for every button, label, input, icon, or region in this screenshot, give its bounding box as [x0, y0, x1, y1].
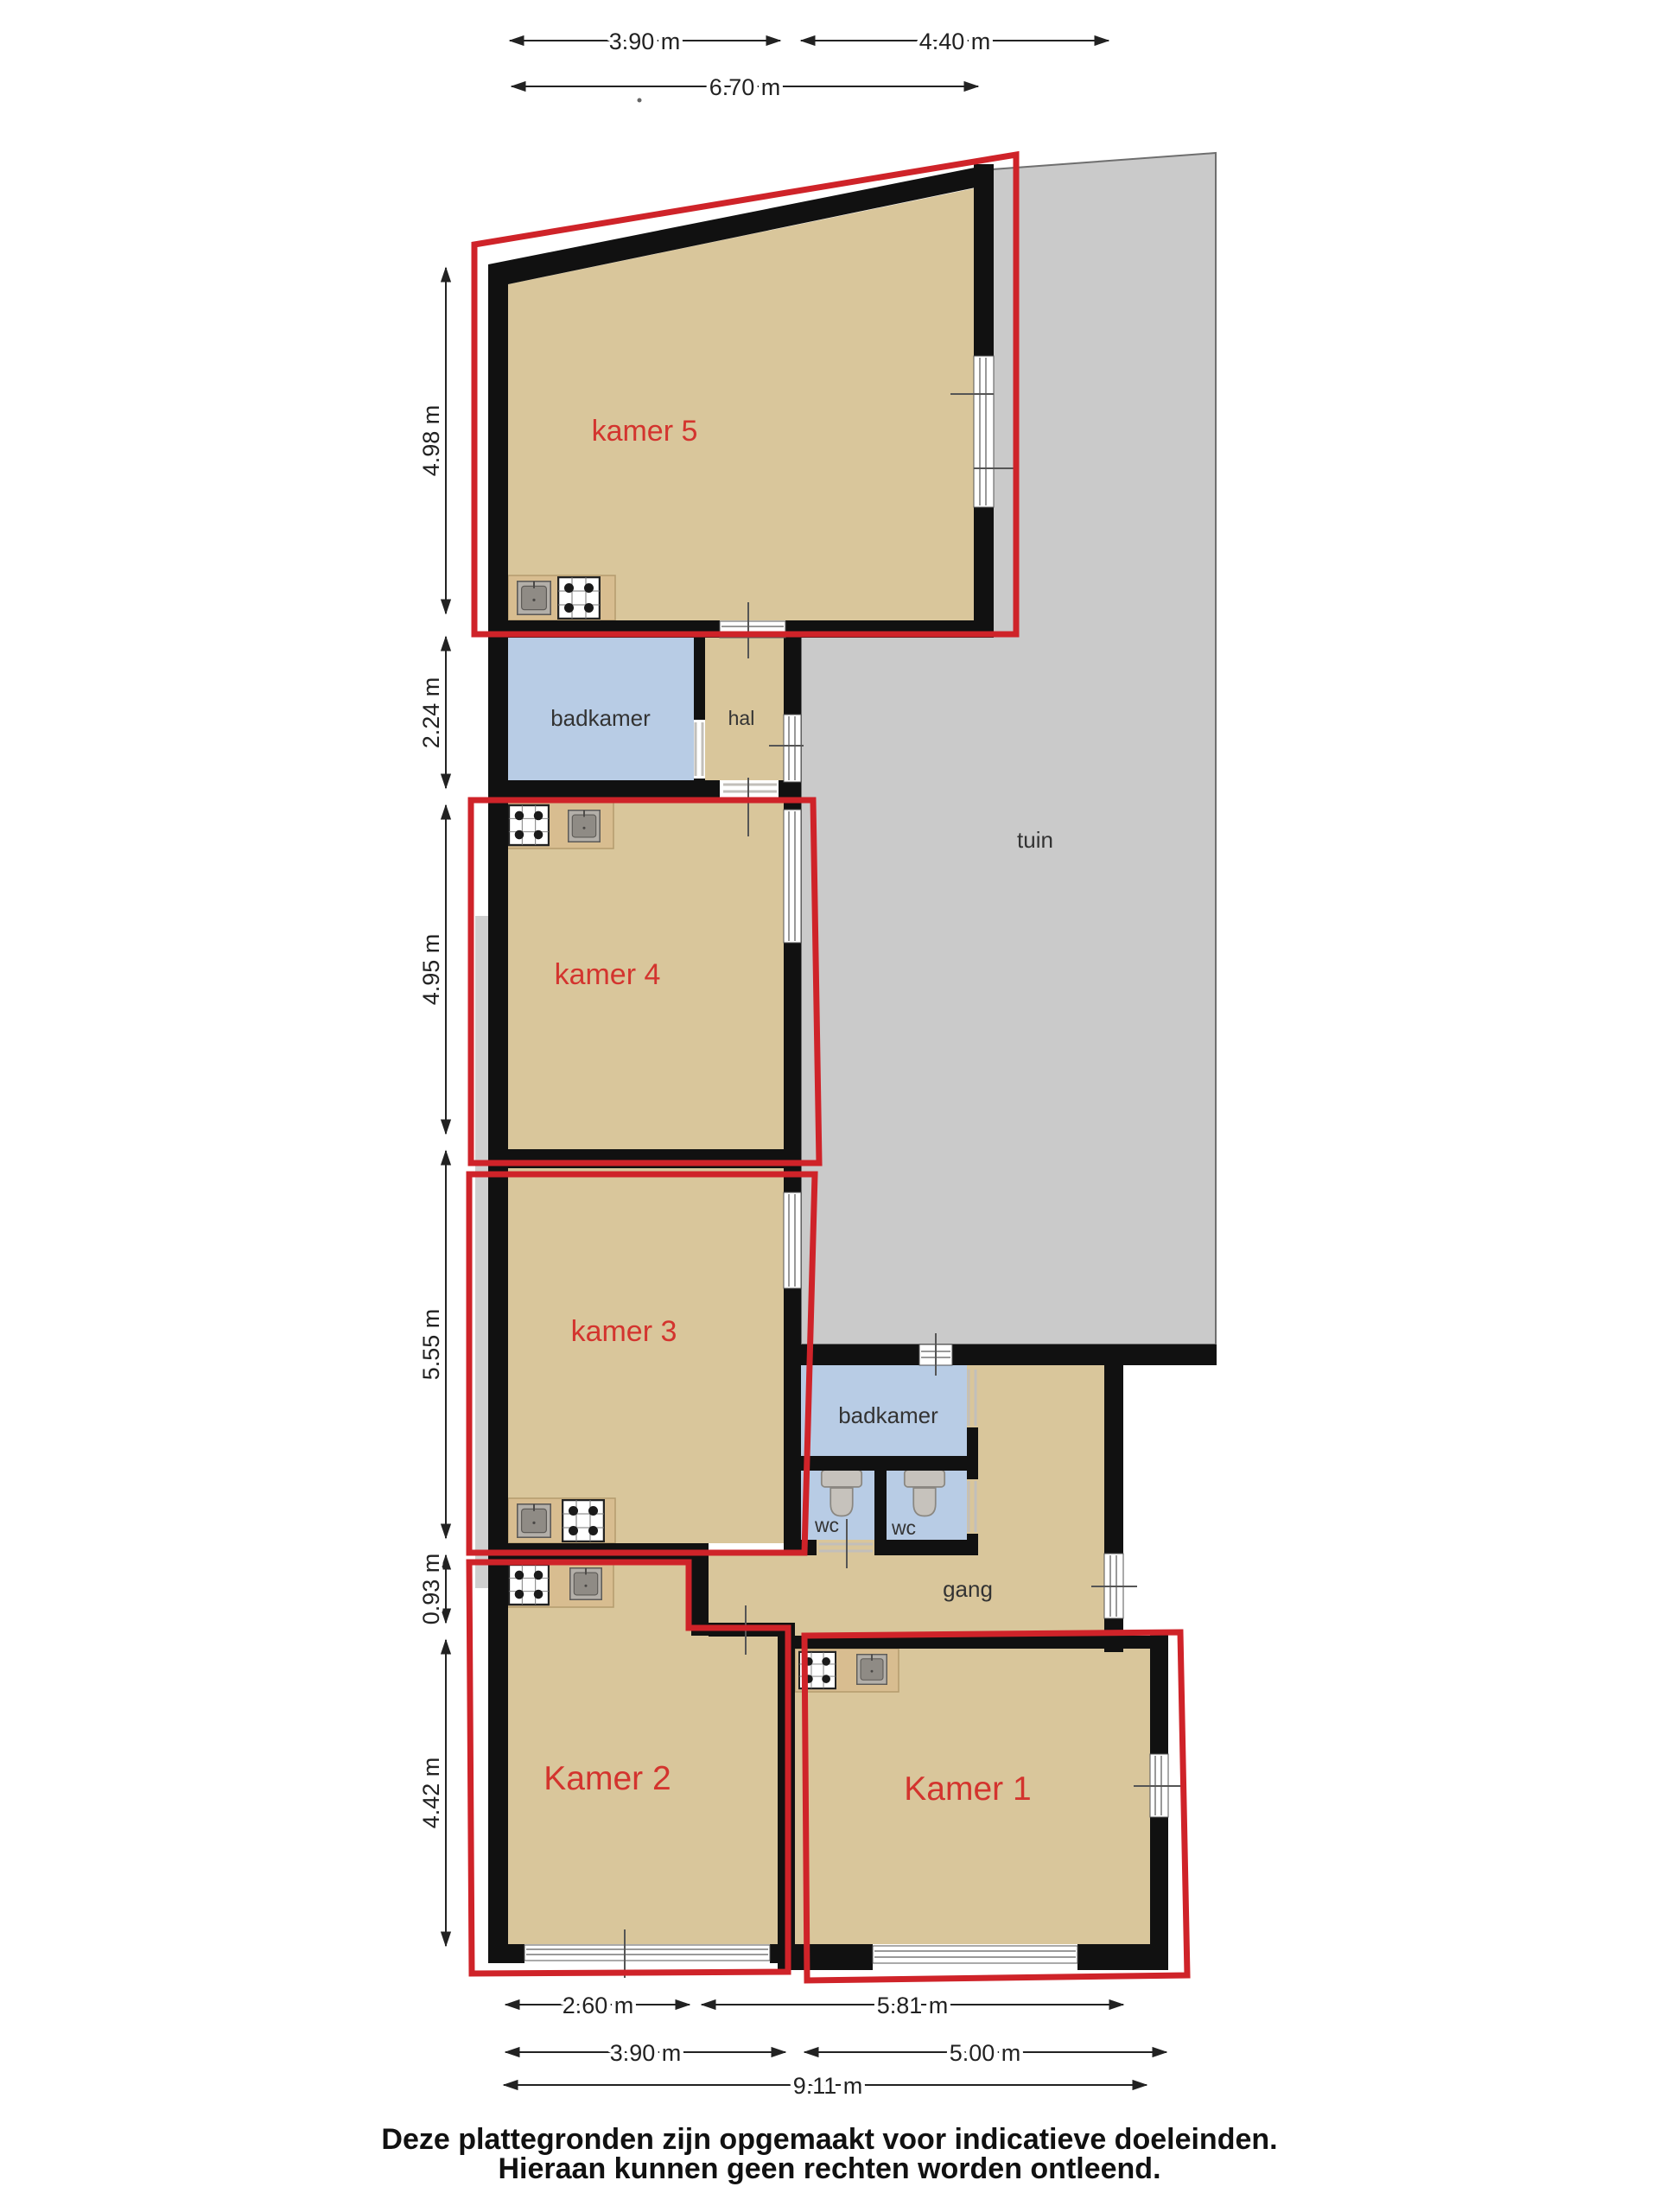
wall-segment	[488, 1944, 524, 1963]
room-label-badkamer: badkamer	[838, 1402, 938, 1428]
wall-segment	[784, 637, 801, 715]
side-path	[475, 916, 488, 1588]
room-label-kamer1: Kamer 1	[904, 1770, 1031, 1808]
room-label-kamer4: kamer 4	[555, 958, 661, 991]
stove-icon	[563, 1500, 604, 1541]
wall-segment	[691, 1543, 709, 1636]
stove-icon	[558, 577, 600, 619]
dimension-label: 5.55 m	[418, 1309, 444, 1381]
room-label-wc-rechts: wc	[891, 1516, 916, 1539]
disclaimer: Deze plattegronden zijn opgemaakt voor i…	[381, 2123, 1277, 2185]
sink-icon	[569, 810, 600, 842]
sink-icon	[518, 1504, 550, 1537]
window-kamer5-right	[974, 356, 994, 507]
wall-segment	[874, 1540, 978, 1555]
room-label-kamer3: kamer 3	[571, 1315, 677, 1348]
room-label-kamer2: Kamer 2	[543, 1760, 671, 1797]
dimension-label: 2.24 m	[418, 677, 444, 749]
wall-segment	[974, 164, 994, 356]
room-label-gang: gang	[943, 1576, 993, 1602]
dimension-dot	[638, 99, 642, 103]
wall-segment	[874, 1471, 887, 1540]
sink-icon	[857, 1655, 887, 1685]
wall-segment	[974, 507, 994, 637]
dimension-label: 4.40 m	[919, 29, 991, 54]
floor-plan-canvas: 3.90 m 4.40 m 6.70 m 4.98 m 2.24 m 4.95 …	[0, 0, 1659, 2212]
dimension-label: 3.90 m	[609, 29, 681, 54]
window-kamer3-right	[784, 1192, 801, 1288]
window-hal-right	[784, 715, 801, 782]
window-kamer4-right	[784, 810, 801, 943]
wall-segment	[770, 1944, 795, 1963]
dimension-label: 5.81 m	[877, 1993, 949, 2018]
window-kamer2-bottom	[524, 1945, 770, 1961]
wall-segment	[779, 780, 801, 799]
room-label-kamer5: kamer 5	[592, 415, 698, 448]
room-label-badkamer-boven: badkamer	[550, 705, 651, 731]
wall-segment	[784, 1456, 978, 1471]
wall-segment	[488, 264, 508, 1963]
wall-segment	[784, 1288, 801, 1553]
wall-segment	[952, 1344, 1217, 1365]
room-label-hal: hal	[728, 707, 755, 729]
dimension-label: 5.00 m	[950, 2040, 1021, 2066]
dimension-label: 6.70 m	[709, 74, 781, 100]
dimension-label: 9.11 m	[793, 2073, 863, 2099]
floor-plan-page: 3.90 m 4.40 m 6.70 m 4.98 m 2.24 m 4.95 …	[0, 0, 1659, 2212]
dimension-label: 4.98 m	[418, 405, 444, 477]
window-kamer1-bottom	[873, 1946, 1077, 1963]
wall-segment	[1150, 1633, 1168, 1754]
wall-segment	[694, 637, 705, 720]
wall-segment	[1104, 1365, 1123, 1554]
wall-segment	[784, 1344, 919, 1365]
wall-segment	[967, 1427, 978, 1479]
stove-icon	[509, 805, 549, 845]
disclaimer-line-1: Deze plattegronden zijn opgemaakt voor i…	[381, 2123, 1277, 2156]
room-label-wc-links: wc	[814, 1514, 839, 1536]
stove-icon	[509, 1565, 549, 1605]
room-label-tuin: tuin	[1017, 827, 1053, 853]
dimension-label: 0.93 m	[418, 1554, 444, 1625]
sink-icon	[570, 1568, 601, 1599]
dimension-label: 4.95 m	[418, 934, 444, 1006]
kamer3-floor	[508, 1168, 784, 1543]
dimension-label: 3.90 m	[610, 2040, 682, 2066]
sink-icon	[518, 582, 550, 614]
dimension-label: 2.60 m	[563, 1993, 634, 2018]
wall-segment	[1077, 1944, 1168, 1970]
disclaimer-line-2: Hieraan kunnen geen rechten worden ontle…	[498, 2152, 1160, 2185]
dimension-label: 4.42 m	[418, 1758, 444, 1829]
wall-segment	[488, 780, 720, 799]
